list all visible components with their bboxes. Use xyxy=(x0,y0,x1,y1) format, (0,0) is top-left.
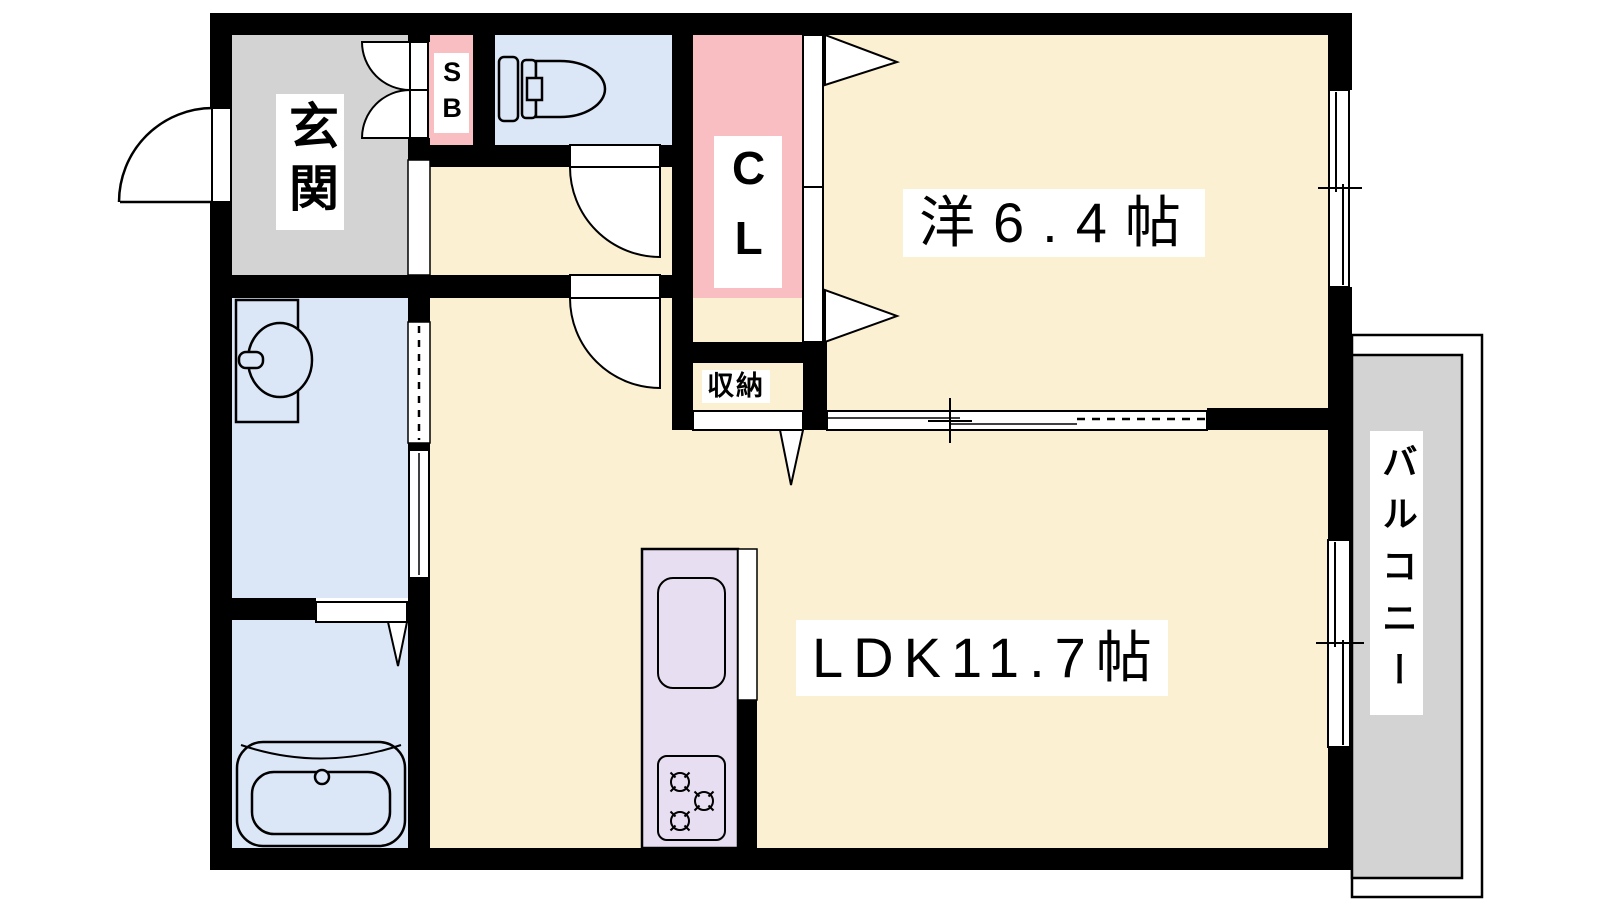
washroom-sliding-door xyxy=(408,322,430,578)
floor-plan-drawing xyxy=(0,0,1600,900)
kitchen-counter-hatch xyxy=(738,549,757,700)
storage-label: 収納 xyxy=(702,370,770,403)
genkan-hall-opening xyxy=(408,160,430,275)
kitchen-sink xyxy=(658,578,725,688)
shoe-box-label: SB xyxy=(434,53,469,133)
toilet-icon xyxy=(499,57,605,121)
genkan-label: 玄関 xyxy=(276,94,344,230)
western-room-label: 洋6.4帖 xyxy=(903,189,1205,257)
bathroom-floor xyxy=(232,620,408,848)
ldk-floor xyxy=(430,298,1328,848)
entrance-door xyxy=(119,108,231,202)
ldk-label: LDK11.7帖 xyxy=(796,620,1168,696)
closet-label: CL xyxy=(714,136,782,288)
kitchen-stove xyxy=(658,756,725,840)
balcony-label: バルコニー xyxy=(1370,431,1423,715)
floor-plan: 玄関 SB CL 洋6.4帖 収納 LDK11.7帖 バルコニー xyxy=(0,0,1600,900)
